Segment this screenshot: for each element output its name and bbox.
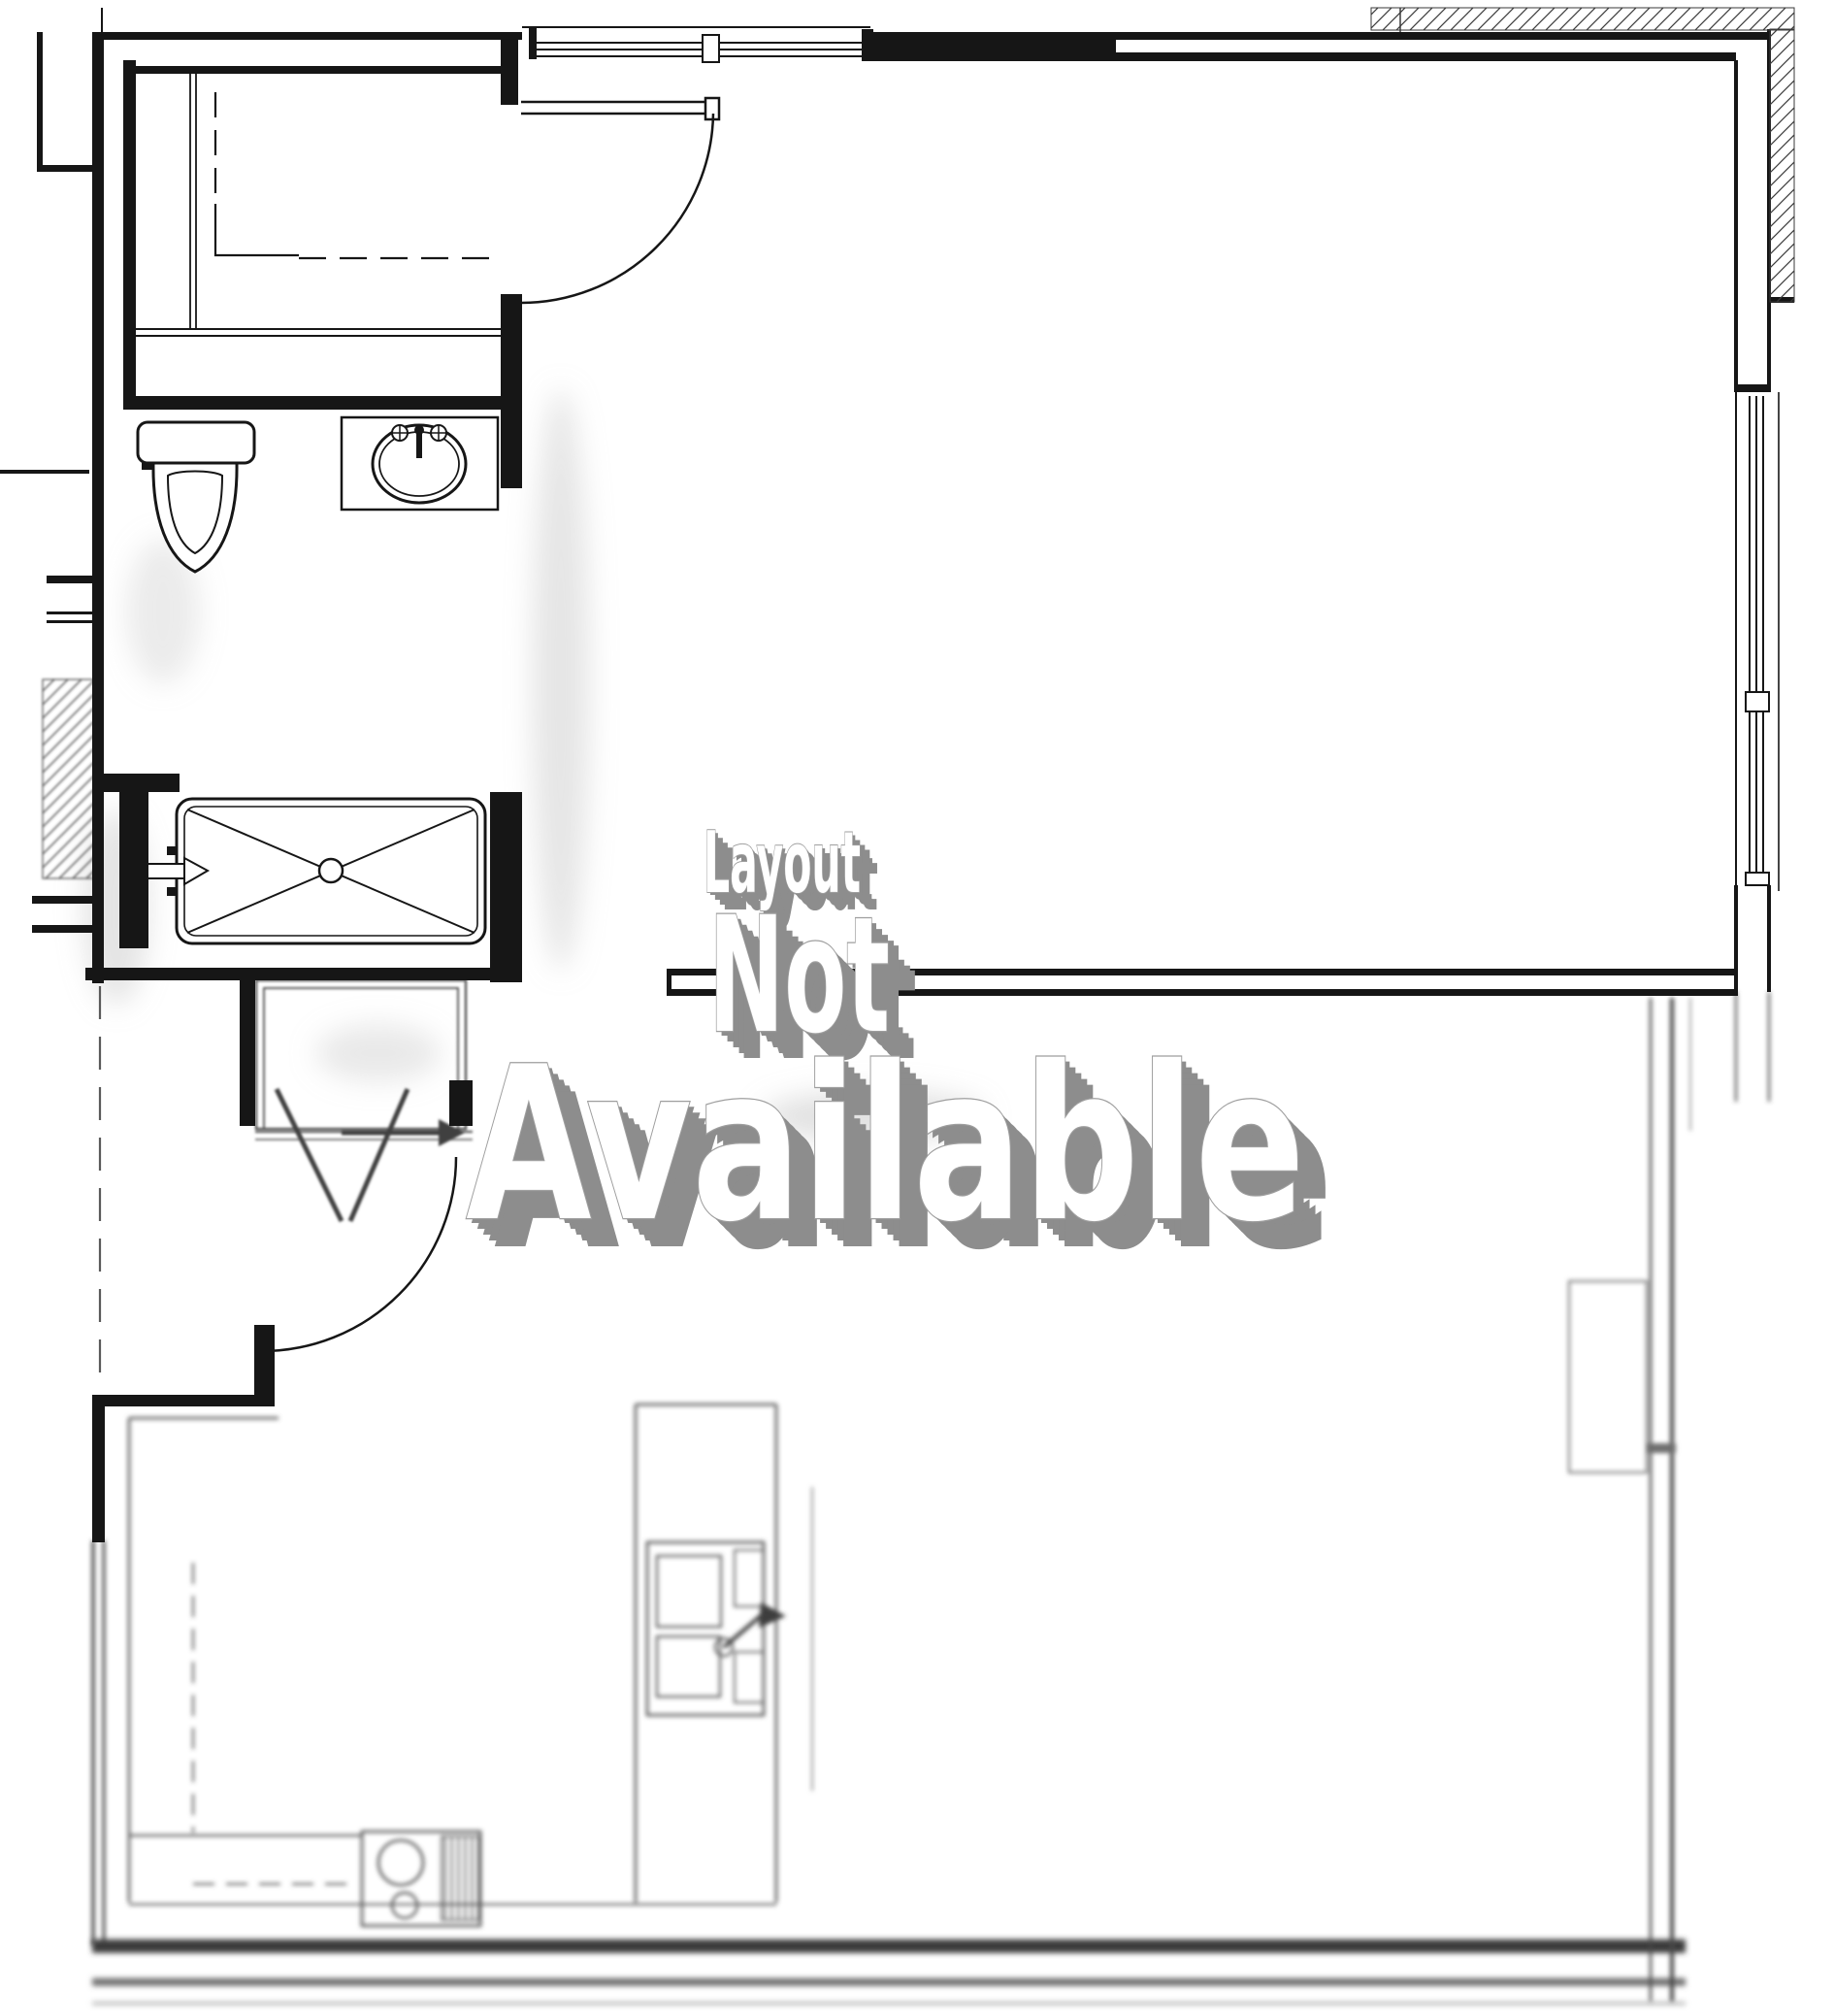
shower-control-top xyxy=(167,846,178,855)
closet-bath-divider-wall xyxy=(123,396,522,410)
bottom-wall-line-1 xyxy=(92,1939,1686,1953)
bathroom-bottom-wall xyxy=(85,968,490,980)
closet-room-top-wall-inner xyxy=(123,66,517,74)
faucet-stem xyxy=(416,433,422,458)
shower-drain xyxy=(319,859,343,882)
right-column-lower-inner xyxy=(1734,885,1738,992)
right-window-sill xyxy=(1746,873,1769,885)
right-lower-walls xyxy=(1569,992,1769,2001)
left-exterior-wall xyxy=(92,32,104,983)
kitchen-left-wall-top xyxy=(92,1395,105,1542)
left-outer-face-line xyxy=(37,32,43,172)
closet-bath-right-wall xyxy=(501,294,522,488)
door-symbol-v-right xyxy=(350,1089,408,1221)
left-wall-tick-4a xyxy=(47,611,97,614)
top-window-mullion xyxy=(703,35,719,62)
hatch-band-right xyxy=(1770,29,1794,302)
shower-arm xyxy=(147,864,184,878)
door-swing-arc xyxy=(521,114,713,303)
door-symbol-v-left xyxy=(277,1089,342,1221)
bath-internal-stub xyxy=(102,774,180,792)
faucet-spout xyxy=(724,1614,763,1647)
top-wall-outer-line xyxy=(1116,32,1770,40)
left-wall-tick-3 xyxy=(47,576,97,583)
toilet-tank xyxy=(138,422,254,463)
closet-rod-corner xyxy=(215,204,299,255)
floorplan-page: Layout Layout Layout Layout Layout Not N… xyxy=(0,0,1834,2016)
bathroom-fixtures xyxy=(138,417,498,572)
kitchen xyxy=(93,1405,812,1945)
shower-head-icon xyxy=(184,858,208,884)
shower-control-bottom xyxy=(167,887,178,896)
closet-room-interior xyxy=(136,74,501,336)
left-wall-tick-1 xyxy=(37,165,92,172)
closet-door xyxy=(521,98,719,303)
right-wall-joint xyxy=(1647,1443,1676,1453)
left-wall-tick-5 xyxy=(32,896,97,904)
watermark: Layout Layout Layout Layout Layout Not N… xyxy=(466,813,1333,1297)
right-window xyxy=(1736,392,1779,891)
smudge-vestibule xyxy=(315,1024,442,1082)
watermark-text: Available xyxy=(466,1021,1305,1269)
closet-room-top-wall-outer xyxy=(92,32,522,40)
right-side-cabinet xyxy=(1569,1281,1647,1472)
watermark-line-3: Available Available Available Available … xyxy=(466,1021,1333,1297)
faucet-arrow-icon xyxy=(759,1603,786,1628)
shower-left-wall xyxy=(119,792,148,948)
closet-room-left-wall xyxy=(123,60,136,410)
right-window-mullion xyxy=(1746,692,1769,711)
right-column-inner-face xyxy=(1734,60,1738,390)
right-column-lower-outer xyxy=(1767,885,1771,992)
left-wall-tick-4b xyxy=(47,620,97,623)
kitchen-sink-bowl-top xyxy=(657,1556,721,1627)
top-window-left-jamb xyxy=(529,27,537,59)
stove-burner-large xyxy=(378,1840,423,1885)
hatch-band-top xyxy=(1371,8,1794,30)
entry-door-swing-arc xyxy=(262,1157,456,1351)
door-jamb-top xyxy=(501,39,518,105)
top-thick-wall xyxy=(873,32,1116,61)
shower xyxy=(147,799,485,943)
stove-grill xyxy=(442,1836,478,1920)
sink-drainboard-top xyxy=(735,1550,764,1606)
floorplan-drawing: Layout Layout Layout Layout Layout Not N… xyxy=(0,0,1834,2016)
living-bottom-wall-end-tick xyxy=(667,969,671,996)
kitchen-sink-bowl-bottom xyxy=(657,1636,720,1697)
bottom-wall-line-2 xyxy=(92,1978,1686,1986)
bottom-exterior-wall xyxy=(92,1939,1686,2003)
top-window xyxy=(522,27,870,62)
right-column-cap xyxy=(1734,384,1771,392)
kitchen-top-stub xyxy=(254,1325,275,1398)
vestibule-left-stub xyxy=(240,978,255,1126)
sink-drainboard-bottom xyxy=(735,1652,764,1702)
shower-right-wall xyxy=(490,792,522,982)
smudge-bath-door xyxy=(532,388,590,971)
kitchen-top-wall xyxy=(95,1395,275,1406)
hatched-exterior-corner xyxy=(1371,8,1794,302)
left-wall-tick-6 xyxy=(32,925,97,933)
left-hatched-wall xyxy=(43,679,97,878)
top-wall-inner-line xyxy=(1116,52,1736,61)
left-wall-tick-2 xyxy=(0,470,89,474)
